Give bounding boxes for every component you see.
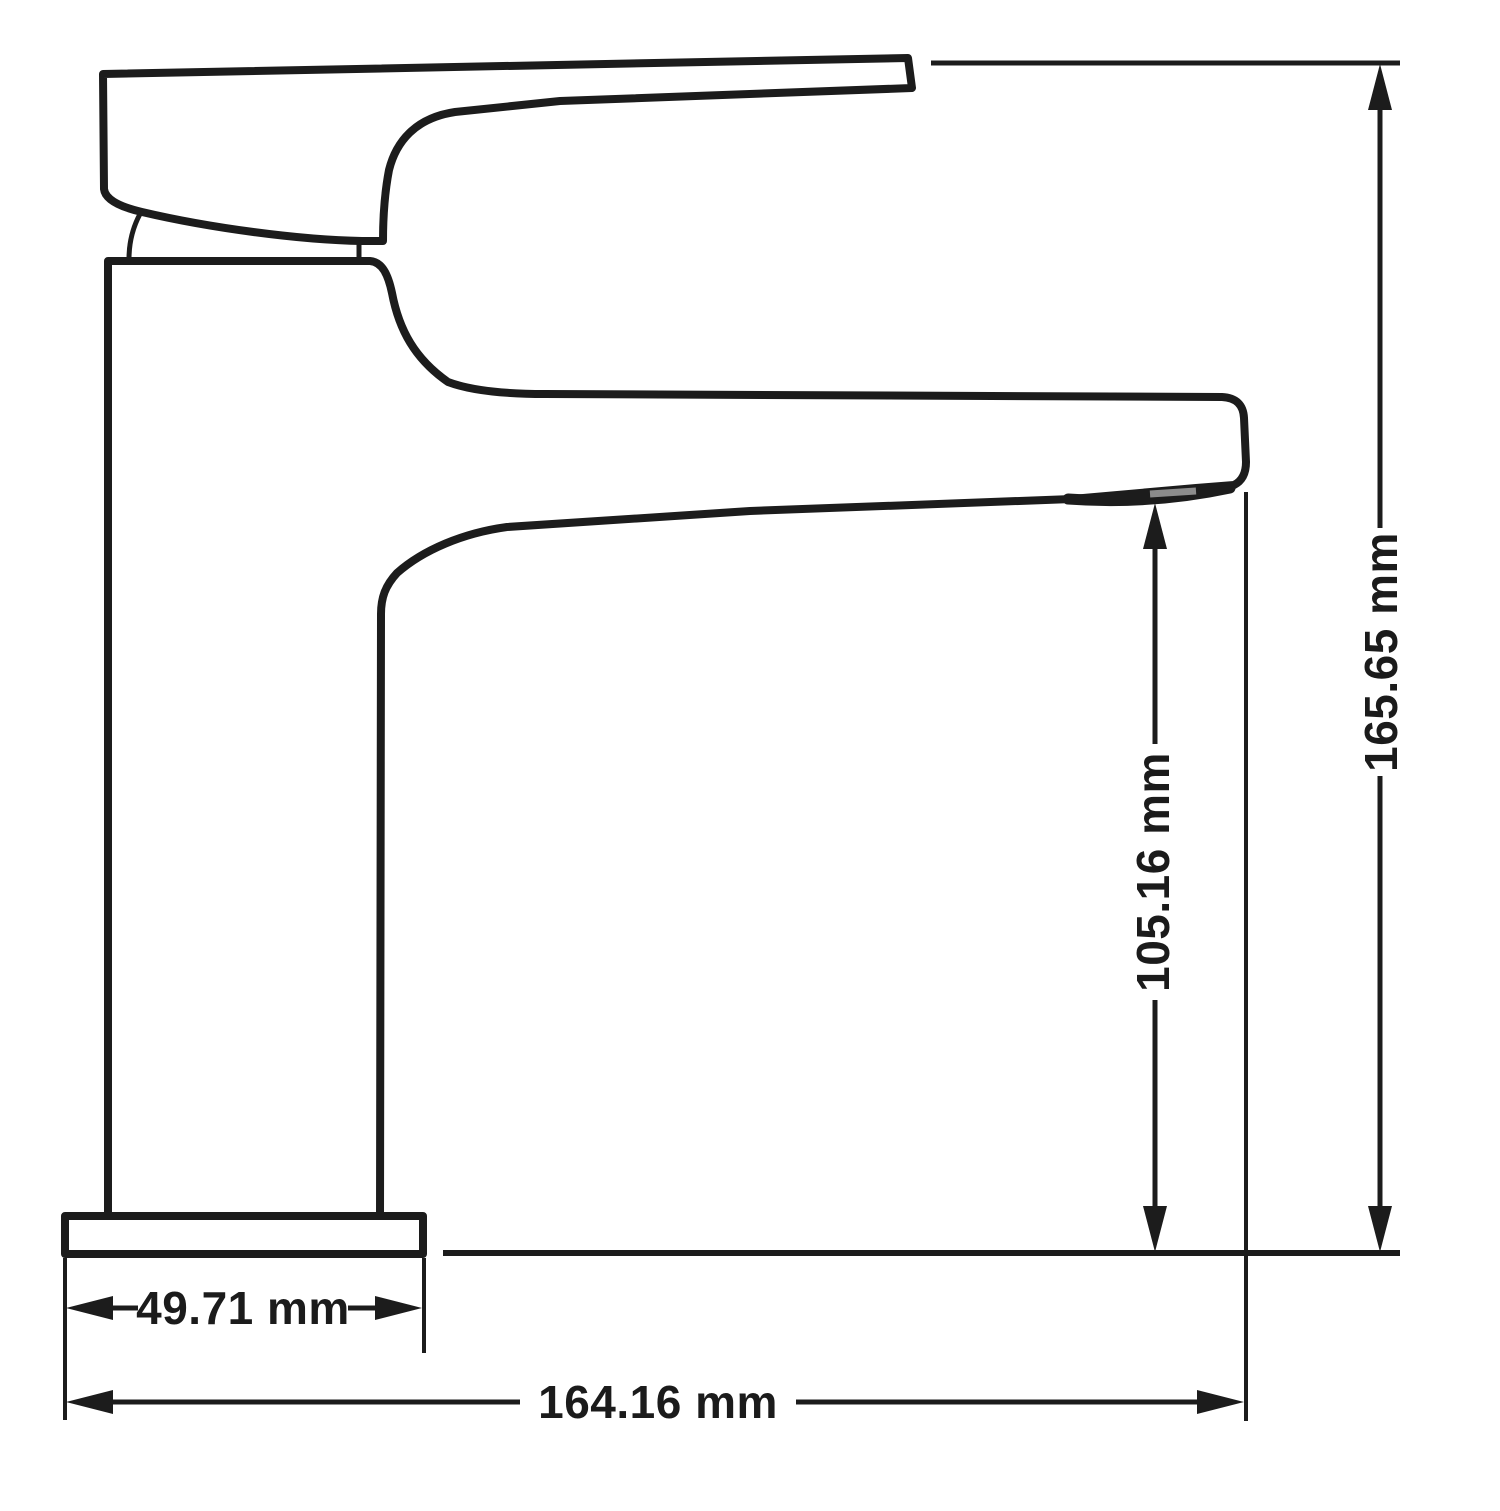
spout-height-label: 105.16 mm <box>1127 752 1179 992</box>
faucet-body-and-spout <box>108 261 1246 1218</box>
base-width-label: 49.71 mm <box>136 1282 350 1334</box>
dimension-base-width: 49.71 mm <box>66 1282 422 1334</box>
overall-length-arrow-left-icon <box>66 1390 113 1414</box>
handle-lever <box>103 58 912 241</box>
handle-dome-joint-line <box>129 214 140 259</box>
aerator <box>1150 491 1196 494</box>
dimension-overall-height: 165.65 mm <box>1355 64 1407 1252</box>
overall-length-arrow-right-icon <box>1197 1390 1244 1414</box>
technical-drawing-page: 165.65 mm 105.16 mm 49.71 mm 164.16 mm <box>0 0 1500 1511</box>
spout-height-arrow-up-icon <box>1143 503 1167 549</box>
overall-height-arrow-down-icon <box>1368 1206 1392 1252</box>
faucet-technical-drawing: 165.65 mm 105.16 mm 49.71 mm 164.16 mm <box>0 0 1500 1511</box>
dimension-overall-length: 164.16 mm <box>66 1376 1244 1428</box>
base-width-arrow-left-icon <box>66 1296 113 1320</box>
base-width-arrow-right-icon <box>375 1296 422 1320</box>
base-plinth <box>65 1216 423 1254</box>
overall-length-label: 164.16 mm <box>538 1376 778 1428</box>
faucet-outline <box>65 58 1246 1254</box>
spout-height-arrow-down-icon <box>1143 1206 1167 1252</box>
overall-height-label: 165.65 mm <box>1355 532 1407 772</box>
overall-height-arrow-up-icon <box>1368 64 1392 110</box>
dimension-spout-height: 105.16 mm <box>1127 503 1179 1252</box>
